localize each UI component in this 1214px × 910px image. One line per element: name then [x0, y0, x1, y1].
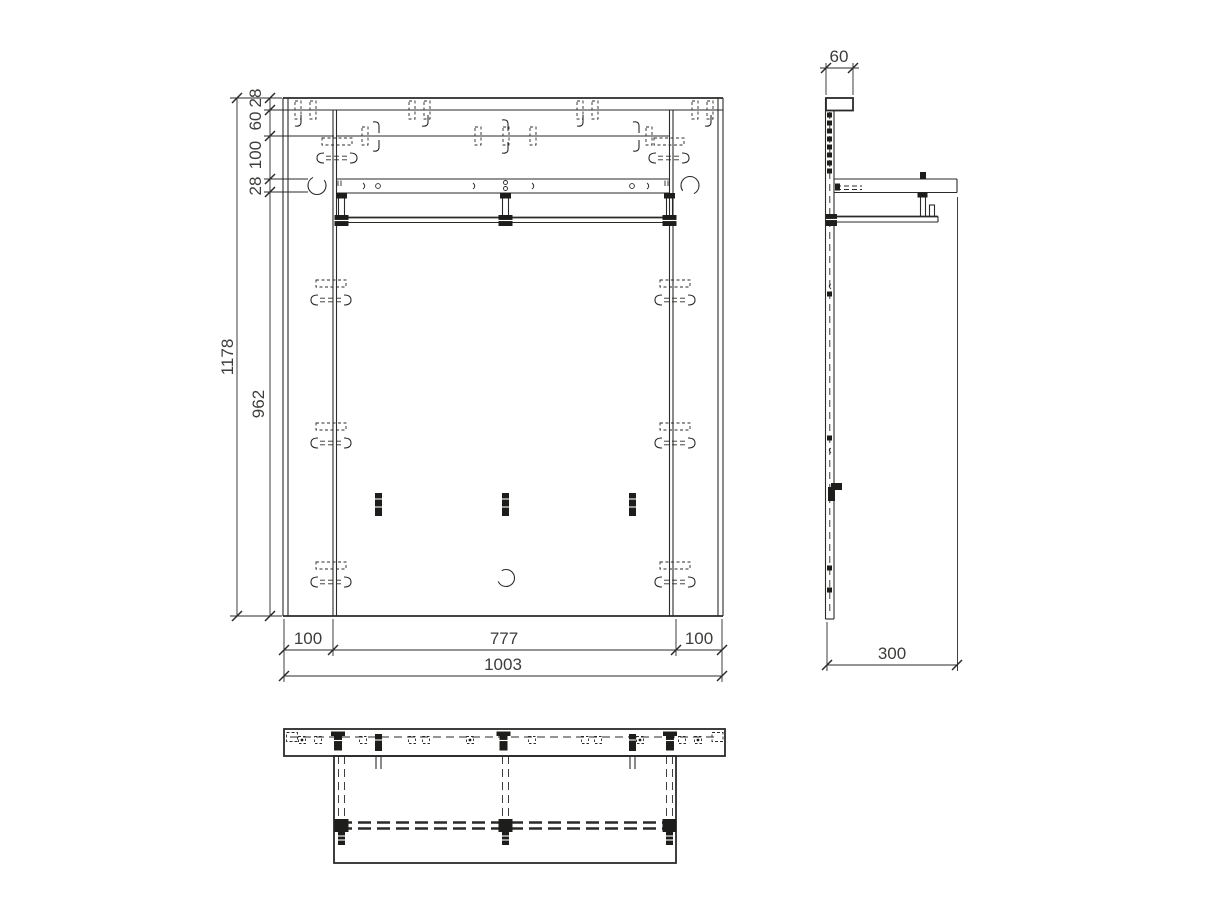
dim-side-view: 60 300	[820, 47, 962, 671]
side-shelf	[834, 172, 957, 193]
dim-bottom-chain: 100 777 100 1003	[279, 619, 727, 682]
side-rail-bracket	[826, 193, 938, 227]
front-hinge-plates	[375, 493, 636, 516]
dim-top-depth: 60	[830, 47, 849, 66]
front-panel-outline	[283, 98, 723, 616]
dim-top-gap: 60	[246, 112, 265, 131]
technical-drawing-canvas: 28 60 100 28 1178 962 100 777 100 1003 6…	[0, 0, 1214, 910]
front-hole-circles	[308, 177, 699, 587]
dim-left-chain: 28 60 100 28 1178 962	[218, 89, 334, 621]
top-panel-bar	[284, 729, 725, 769]
dim-shelf-depth: 300	[878, 644, 906, 663]
dim-shelf-thickness: 28	[246, 177, 265, 196]
dim-center-span: 777	[490, 629, 518, 648]
dim-overall-width: 1003	[484, 655, 522, 674]
front-hanging-rail	[335, 193, 677, 226]
drawing-svg: 28 60 100 28 1178 962 100 777 100 1003 6…	[0, 0, 1214, 910]
front-view	[283, 98, 723, 616]
top-shelf-outline	[334, 756, 677, 863]
dim-upper-zone: 100	[246, 141, 265, 169]
dim-right-inset: 100	[685, 629, 713, 648]
dim-top-board: 28	[246, 89, 265, 108]
front-top-fittings	[295, 101, 713, 153]
side-panel	[826, 98, 854, 619]
side-view	[826, 98, 958, 619]
dim-left-inset: 100	[294, 629, 322, 648]
dim-overall-height: 1178	[218, 339, 237, 376]
dim-body-height: 962	[249, 390, 268, 418]
front-shelf-strip	[337, 179, 670, 193]
top-view	[284, 729, 725, 863]
